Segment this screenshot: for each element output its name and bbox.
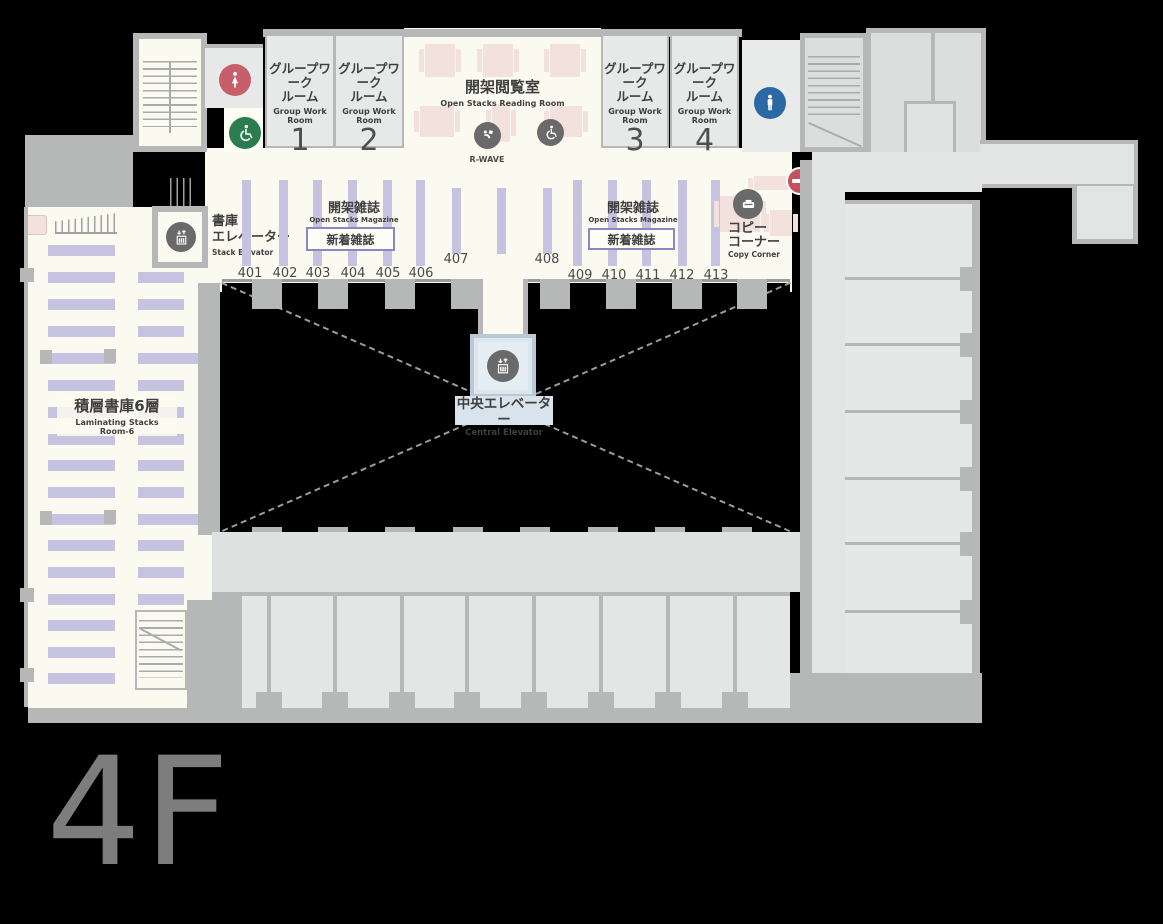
stack-elevator-label-jp1: 書庫 [212, 214, 302, 230]
east-room-divider [845, 477, 972, 480]
room-label-jp2: ルーム [603, 90, 667, 104]
male-toilet-icon [754, 87, 786, 119]
laminating-stacks-en1: Laminating Stacks [57, 418, 177, 427]
stack-shelf [48, 245, 115, 256]
east-room-divider [845, 410, 972, 413]
wall-tab [20, 588, 34, 602]
stack-shelf [48, 272, 115, 283]
reading-room-label: 開架閲覧室 Open Stacks Reading Room [404, 76, 601, 108]
atrium-pillar [451, 279, 481, 309]
room-number: 4 [672, 126, 737, 156]
reading-table [550, 44, 580, 77]
magazine-label-jp: 開架雑誌 [304, 197, 404, 216]
room-label-jp2: ルーム [336, 90, 402, 104]
atrium-pillar [385, 279, 415, 309]
stack-shelf [48, 326, 115, 337]
floor-plan-4f: グループワーク ルーム Group Work Room 1 グループワーク ルー… [0, 0, 1163, 924]
stack-shelf [48, 567, 115, 578]
stack-elevator-shaft-hatch [170, 178, 192, 206]
stack-shelf [138, 540, 184, 551]
central-elevator-stem [483, 279, 523, 339]
escalator-hatch-lines [55, 213, 117, 234]
group-work-room-1: グループワーク ルーム Group Work Room 1 [265, 36, 335, 148]
central-elevator-en: Central Elevator [455, 428, 553, 438]
atrium-pillar [737, 279, 767, 309]
stair-center-line [169, 61, 171, 133]
reading-room-label-en: Open Stacks Reading Room [404, 99, 601, 108]
magazine-shelf-strip [279, 180, 288, 266]
magazine-shelf-strip [497, 188, 506, 254]
stack-shelf [48, 540, 115, 551]
west-wall [24, 207, 28, 707]
group-work-room-2: グループワーク ルーム Group Work Room 2 [334, 36, 404, 148]
stem-wall-right [523, 279, 528, 339]
shelf-end-cap [104, 349, 116, 363]
east-corridor-band [812, 152, 982, 192]
east-room-divider [845, 343, 972, 346]
accessible-toilet-icon [229, 117, 261, 149]
rwave-label: R-WAVE [447, 147, 527, 166]
northeast-rooms [866, 28, 986, 167]
stack-shelf [138, 272, 184, 283]
stack-shelf [138, 326, 184, 337]
magazine-shelf-strip [452, 188, 461, 254]
atrium-west-wall [198, 283, 220, 535]
stack-shelf [138, 353, 198, 364]
room-label-jp2: ルーム [267, 90, 333, 104]
magazine-shelf-strip [242, 180, 251, 266]
central-elevator-label: 中央エレベーター Central Elevator [455, 396, 553, 425]
stack-shelf [48, 487, 115, 498]
stack-shelf [138, 460, 184, 471]
atrium-pillar [540, 279, 570, 309]
east-room-divider [845, 542, 972, 545]
magazine-shelf-strip [543, 188, 552, 254]
atrium-pillar [672, 279, 702, 309]
stack-shelf [48, 647, 115, 658]
stair-diagonal [808, 122, 862, 147]
east-corridor-west-wall [800, 160, 812, 688]
stack-shelf [138, 380, 184, 391]
copy-corner-jp1: コピー [728, 222, 784, 236]
magazine-label-en: Open Stacks Magazine [583, 216, 683, 224]
room-divider [931, 33, 935, 108]
east-corridor [812, 192, 845, 675]
stack-elevator-label-jp2: エレベーター [212, 230, 302, 246]
room-number: 3 [603, 126, 667, 156]
room-number: 2 [336, 126, 402, 156]
room-label-jp: グループワーク [603, 62, 667, 90]
laminating-stacks-en2: Room-6 [57, 427, 177, 436]
wall-tab [20, 668, 34, 682]
copy-corner-en: Copy Corner [728, 250, 784, 259]
central-elevator-jp: 中央エレベーター [455, 396, 553, 428]
stack-shelf [138, 487, 184, 498]
northwest-stairwell [133, 33, 207, 152]
stack-shelf [138, 514, 198, 525]
magazine-label-east: 開架雑誌 Open Stacks Magazine [583, 197, 683, 224]
east-room-divider [845, 610, 972, 613]
room-label-jp2: ルーム [672, 90, 737, 104]
stack-elevator-label: 書庫 エレベーター Stack Elevator [212, 214, 302, 257]
shelf-end-cap [40, 511, 52, 525]
new-magazines-box-east: 新着雑誌 [588, 228, 675, 250]
magazine-shelf-strip [573, 180, 582, 266]
southwest-wall-mass [187, 600, 212, 712]
stack-shelf [48, 673, 115, 684]
room-number: 1 [267, 126, 333, 156]
shelf-number: 407 [439, 252, 473, 267]
room-label-jp: グループワーク [267, 62, 333, 90]
new-magazines-label: 新着雑誌 [326, 231, 374, 248]
south-corridor [212, 532, 812, 592]
reading-room-label-jp: 開架閲覧室 [404, 76, 601, 97]
reading-table [420, 106, 454, 137]
stair-steps [808, 56, 860, 118]
rwave-terminal-icon [474, 122, 501, 149]
floor-level-label: 4F [46, 738, 232, 888]
shelf-number: 408 [530, 252, 564, 267]
rwave-label-text: R-WAVE [470, 155, 505, 164]
wall-fixture [25, 215, 47, 235]
east-room-pillar [960, 532, 980, 556]
southwest-stairs [135, 610, 187, 690]
east-room-divider [845, 277, 972, 280]
copier-icon [733, 189, 763, 219]
atrium-pillar [318, 279, 348, 309]
group-work-room-4: グループワーク ルーム Group Work Room 4 [670, 36, 739, 148]
new-magazines-box-west: 新着雑誌 [306, 227, 395, 251]
female-toilet-icon [219, 64, 251, 96]
shelf-end-cap [40, 350, 52, 364]
south-wall-mass [212, 592, 242, 712]
escalator-hatch [55, 213, 117, 234]
atrium-pillar [606, 279, 636, 309]
elevator-icon [166, 222, 196, 252]
stack-shelf [48, 594, 115, 605]
stack-elevator-label-en: Stack Elevator [212, 248, 302, 257]
stack-shelf [138, 567, 184, 578]
wheelchair-icon [537, 119, 564, 146]
stack-shelf [138, 594, 184, 605]
stack-shelf [48, 620, 115, 631]
magazine-shelf-strip [416, 180, 425, 266]
room-label-jp: グループワーク [336, 62, 402, 90]
southeast-base [790, 673, 982, 723]
wall-tab [20, 268, 34, 282]
stack-shelf [48, 380, 115, 391]
northeast-stairwell [800, 33, 868, 152]
stack-shelf [48, 460, 115, 471]
northwest-wall-mass [25, 135, 133, 207]
east-room-pillar [960, 400, 980, 424]
east-room-pillar [960, 333, 980, 357]
laminating-stacks-jp: 積層書庫6層 [57, 395, 177, 416]
magazine-label-jp: 開架雑誌 [583, 197, 683, 216]
east-arm-room [1072, 186, 1138, 244]
reading-table [425, 44, 455, 77]
east-arm-corridor [980, 140, 1138, 188]
stack-shelf [138, 299, 184, 310]
escalator-edge [55, 232, 117, 234]
copy-corner-jp2: コーナー [728, 236, 784, 250]
room-label-jp: グループワーク [672, 62, 737, 90]
east-room-pillar [960, 267, 980, 291]
magazine-label-west: 開架雑誌 Open Stacks Magazine [304, 197, 404, 224]
east-room-pillar [960, 600, 980, 624]
stem-wall-left [478, 279, 483, 339]
stack-shelf [48, 299, 115, 310]
group-work-room-3: グループワーク ルーム Group Work Room 3 [601, 36, 669, 148]
new-magazines-label: 新着雑誌 [607, 231, 655, 248]
laminating-stacks-label: 積層書庫6層 Laminating Stacks Room-6 [57, 395, 177, 436]
magazine-label-en: Open Stacks Magazine [304, 216, 404, 224]
shelf-end-cap [104, 510, 116, 524]
east-room-pillar [960, 467, 980, 491]
atrium-pillar [252, 279, 282, 309]
elevator-icon [487, 350, 519, 382]
reading-table [483, 44, 513, 77]
copy-corner-label: コピー コーナー Copy Corner [728, 222, 784, 259]
